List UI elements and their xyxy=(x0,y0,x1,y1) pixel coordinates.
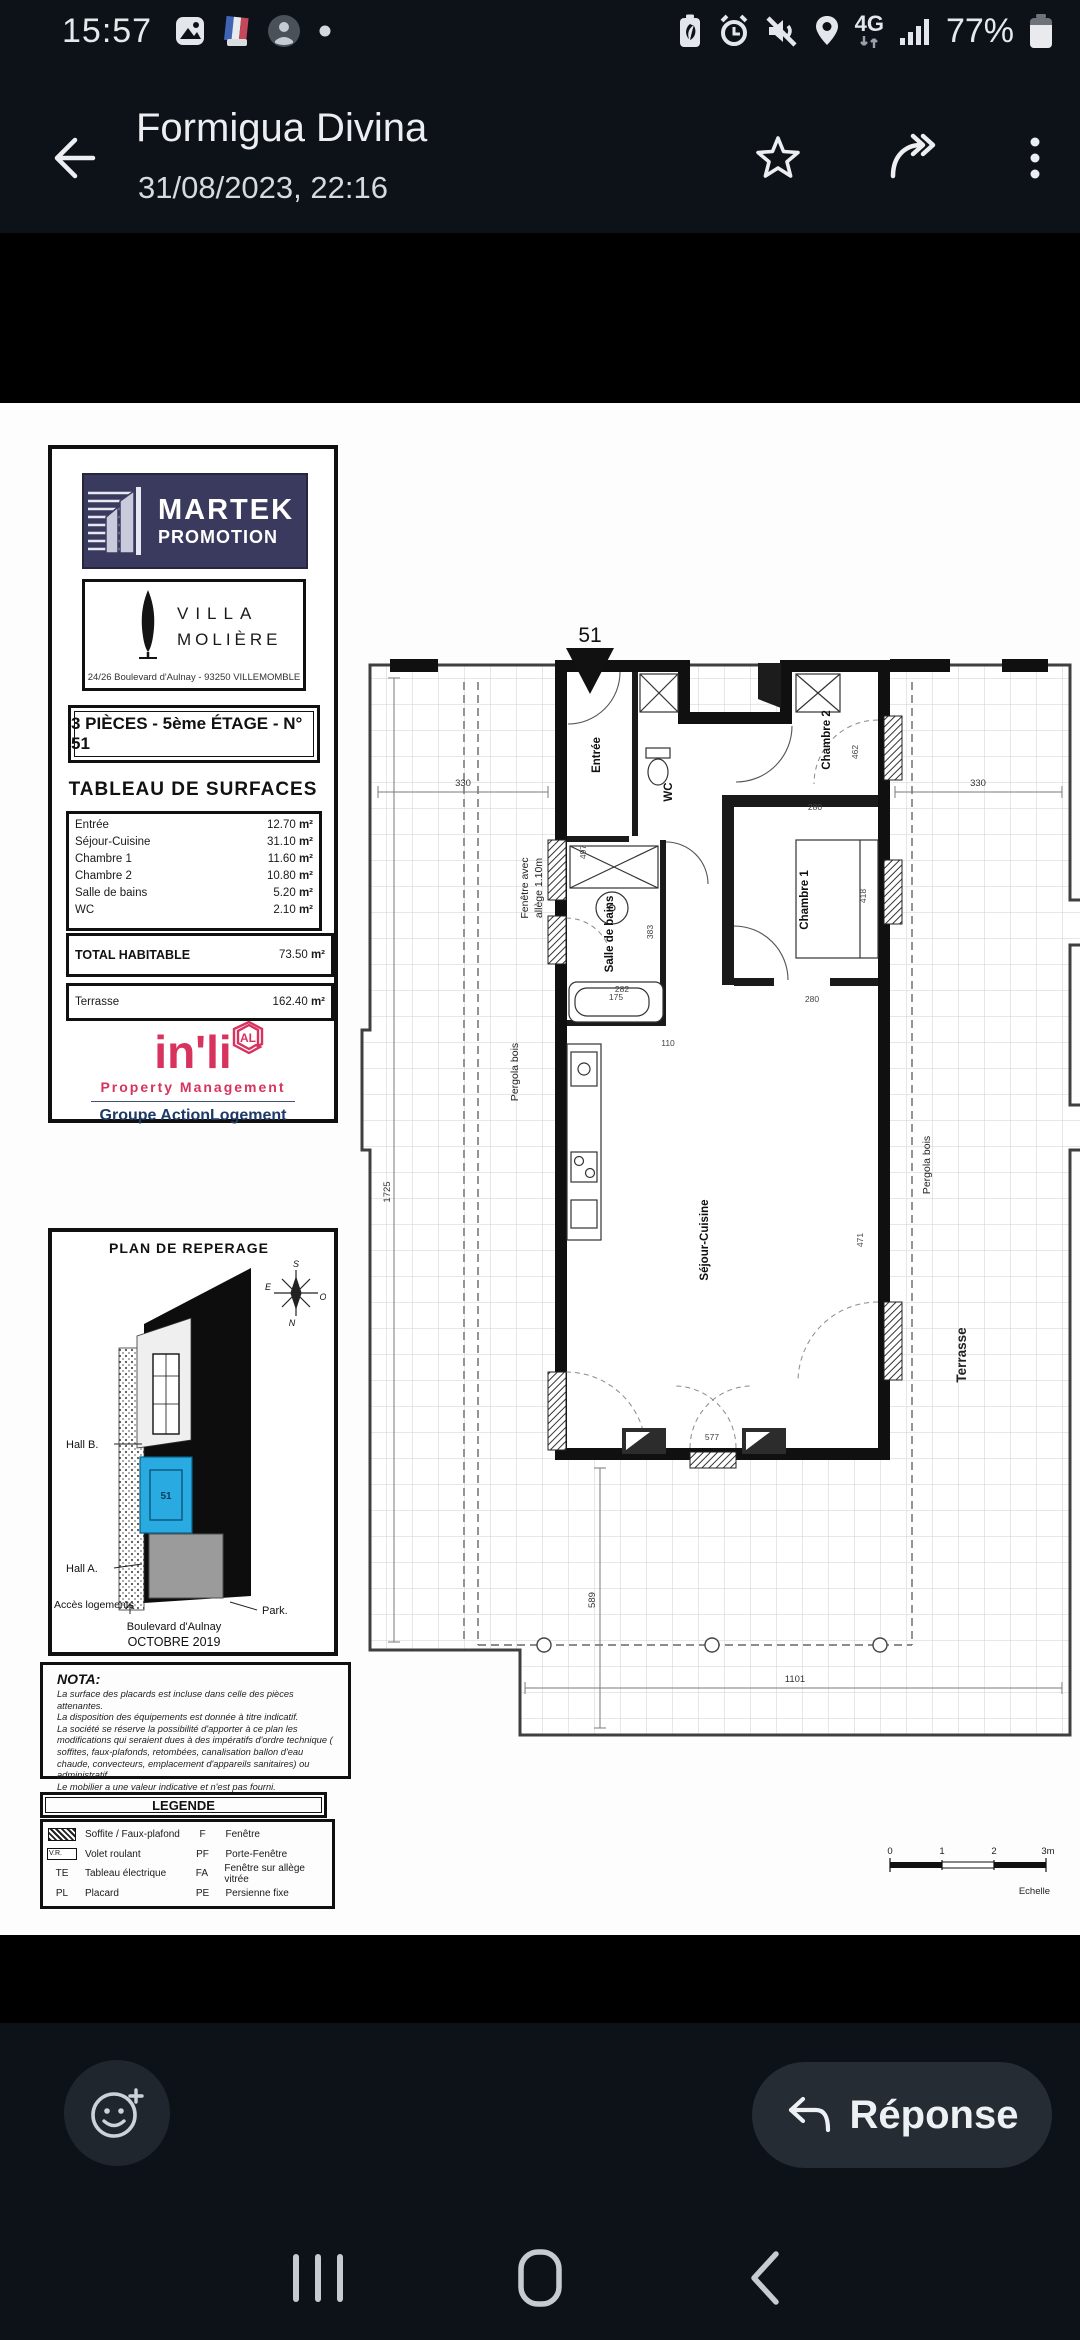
legend-panel: Soffite / Faux-plafond V.R.Volet roulant… xyxy=(40,1819,335,1909)
share-button[interactable] xyxy=(876,122,948,194)
battery-percent-label: 77% xyxy=(946,12,1014,51)
terrasse-label: Terrasse xyxy=(954,1327,969,1383)
back-chevron-icon xyxy=(744,2248,788,2308)
legend-item: TETableau électrique xyxy=(47,1866,188,1881)
svg-text:2: 2 xyxy=(991,1846,996,1857)
reperage-title: PLAN DE REPERAGE xyxy=(52,1240,326,1256)
app-header: Formigua Divina 31/08/2023, 22:16 xyxy=(0,62,1080,233)
legend-item: PLPlacard xyxy=(47,1886,188,1901)
surfaces-title: TABLEAU DE SURFACES xyxy=(52,779,334,801)
inli-logo: in'li AL Property Management Groupe Acti… xyxy=(52,1029,334,1125)
villa-moliere-logo: VILLA MOLIÈRE 24/26 Boulevard d'Aulnay -… xyxy=(82,579,306,691)
street-label: Boulevard d'Aulnay xyxy=(127,1621,222,1633)
cypress-tree-icon xyxy=(133,588,163,660)
svg-text:3m: 3m xyxy=(1041,1846,1054,1857)
forward-arrow-icon xyxy=(885,132,939,184)
site-map: S E O N 51 Hall B. Hall A. Accès logeme xyxy=(52,1258,326,1650)
add-reaction-button[interactable] xyxy=(64,2060,170,2166)
pergola-left-label: Pergola bois xyxy=(509,1043,521,1101)
svg-text:330: 330 xyxy=(970,778,986,789)
room-label-wc: WC xyxy=(663,782,675,801)
unit-banner: 3 PIÈCES - 5ème ÉTAGE - N° 51 xyxy=(68,705,320,763)
kebab-menu-icon xyxy=(1012,132,1058,184)
svg-text:N: N xyxy=(289,1318,296,1328)
avatar-notification-icon xyxy=(266,13,302,49)
legend-item: FFenêtre xyxy=(188,1827,329,1842)
svg-text:S: S xyxy=(293,1259,299,1269)
date-label: OCTOBRE 2019 xyxy=(128,1635,221,1649)
nota-line: La surface des placards est incluse dans… xyxy=(57,1689,338,1712)
volet-roulant-icon: V.R. xyxy=(47,1848,77,1860)
svg-text:AL: AL xyxy=(240,1031,256,1045)
back-arrow-icon xyxy=(45,131,99,185)
signal-icon xyxy=(898,14,932,48)
room-label-chambre2: Chambre 2 xyxy=(821,710,833,769)
svg-text:175: 175 xyxy=(609,992,623,1002)
reply-button[interactable]: Réponse xyxy=(752,2062,1052,2168)
scale-label: Echelle xyxy=(1019,1886,1050,1897)
martek-logo: MARTEK PROMOTION xyxy=(82,473,308,569)
inli-tagline: Property Management xyxy=(52,1079,334,1095)
nota-title: NOTA: xyxy=(57,1671,338,1687)
scale-bar: 0 1 2 3m Echelle xyxy=(887,1846,1054,1897)
martek-buildings-icon xyxy=(84,483,150,559)
clock: 15:57 xyxy=(62,12,152,51)
nota-line: La société se réserve la possibilité d'a… xyxy=(57,1724,338,1782)
total-row: TOTAL HABITABLE 73.50 m² xyxy=(66,933,334,977)
martek-subname: PROMOTION xyxy=(158,528,294,546)
svg-text:418: 418 xyxy=(858,889,868,903)
svg-text:1101: 1101 xyxy=(785,1674,805,1685)
soffit-hatch-icon xyxy=(48,1828,76,1841)
martek-name: MARTEK xyxy=(158,496,294,525)
network-type-label: 4G xyxy=(855,13,884,35)
room-label-sejour: Séjour-Cuisine xyxy=(699,1199,711,1280)
svg-text:280: 280 xyxy=(808,802,822,812)
navigation-bar xyxy=(0,2223,1080,2333)
svg-text:110: 110 xyxy=(661,1038,675,1048)
table-row: Chambre 210.80 m² xyxy=(69,867,319,884)
floor-plan: 330 330 1725 1101 589 xyxy=(360,600,1080,1900)
nota-line: La disposition des équipements est donné… xyxy=(57,1712,338,1724)
alarm-icon xyxy=(717,13,751,49)
table-row: WC2.10 m² xyxy=(69,901,319,918)
room-label-chambre1: Chambre 1 xyxy=(799,870,811,930)
terrace-row: Terrasse 162.40 m² xyxy=(66,983,334,1021)
inli-group: Groupe ActionLogement xyxy=(52,1107,334,1125)
back-button[interactable] xyxy=(36,122,108,194)
surfaces-table: Entrée12.70 m² Séjour-Cuisine31.10 m² Ch… xyxy=(66,811,322,931)
hall-a-label: Hall A. xyxy=(66,1563,98,1575)
legend-item: Soffite / Faux-plafond xyxy=(47,1827,188,1842)
dot-notification-icon xyxy=(318,24,332,38)
legend-item: PFPorte-Fenêtre xyxy=(188,1847,329,1862)
divider xyxy=(91,1101,295,1102)
photo-timestamp: 31/08/2023, 22:16 xyxy=(138,170,388,206)
table-row: Séjour-Cuisine31.10 m² xyxy=(69,833,319,850)
room-label-sdb: Salle de bains xyxy=(604,896,616,973)
legend-item: V.R.Volet roulant xyxy=(47,1847,188,1862)
favorite-button[interactable] xyxy=(742,122,814,194)
svg-text:497: 497 xyxy=(578,845,588,859)
home-icon xyxy=(513,2247,567,2309)
status-bar: 15:57 4G 77% xyxy=(0,0,1080,62)
svg-text:E: E xyxy=(265,1282,272,1292)
menu-button[interactable] xyxy=(999,122,1071,194)
svg-text:383: 383 xyxy=(645,925,655,939)
legend-item: PEPersienne fixe xyxy=(188,1886,329,1901)
location-icon xyxy=(813,13,841,49)
villa-name-line1: VILLA xyxy=(177,604,282,624)
villa-name-line2: MOLIÈRE xyxy=(177,630,282,650)
hall-b-label: Hall B. xyxy=(66,1439,98,1451)
nota-panel: NOTA: La surface des placards est inclus… xyxy=(40,1662,351,1779)
photo-viewer[interactable]: MARTEK PROMOTION VILLA MOLIÈRE 24/26 Bou… xyxy=(0,233,1080,2023)
svg-text:280: 280 xyxy=(805,994,819,1004)
al-hexagon-icon: AL xyxy=(232,1015,266,1061)
legend-item: FAFenêtre sur allège vitrée xyxy=(188,1866,329,1881)
reperage-panel: PLAN DE REPERAGE S E O N xyxy=(48,1228,338,1656)
svg-text:577: 577 xyxy=(705,1432,719,1442)
network-arrows-icon xyxy=(856,35,882,49)
unit-51-label: 51 xyxy=(160,1491,172,1502)
bottom-bar: Réponse xyxy=(0,2023,1080,2340)
emoji-add-icon xyxy=(88,2084,146,2142)
star-icon xyxy=(752,132,804,184)
recents-icon xyxy=(287,2250,349,2306)
svg-text:O: O xyxy=(319,1292,326,1302)
unit-marker-label: 51 xyxy=(578,624,601,647)
svg-text:589: 589 xyxy=(587,1592,598,1608)
back-nav-button[interactable] xyxy=(706,2228,826,2328)
park-label: Park. xyxy=(262,1605,288,1617)
mute-icon xyxy=(765,13,799,49)
svg-text:allège 1.10m: allège 1.10m xyxy=(533,858,545,918)
svg-text:471: 471 xyxy=(855,1233,865,1247)
reply-arrow-icon xyxy=(786,2094,832,2136)
svg-text:1725: 1725 xyxy=(382,1181,393,1202)
svg-text:1: 1 xyxy=(939,1846,944,1857)
recents-button[interactable] xyxy=(258,2228,378,2328)
room-label-entree: Entrée xyxy=(591,737,603,773)
table-row: Salle de bains5.20 m² xyxy=(69,884,319,901)
battery-saver-icon xyxy=(677,13,703,49)
home-button[interactable] xyxy=(480,2228,600,2328)
floorplan-document: MARTEK PROMOTION VILLA MOLIÈRE 24/26 Bou… xyxy=(0,403,1080,1935)
svg-text:462: 462 xyxy=(850,745,860,759)
flag-notification-icon xyxy=(222,15,250,47)
info-panel: MARTEK PROMOTION VILLA MOLIÈRE 24/26 Bou… xyxy=(48,445,338,1123)
pergola-right-label: Pergola bois xyxy=(921,1136,933,1194)
page-title: Formigua Divina xyxy=(136,106,427,151)
battery-icon xyxy=(1028,12,1054,50)
parking-block xyxy=(149,1534,223,1598)
svg-text:330: 330 xyxy=(455,778,471,789)
reply-label: Réponse xyxy=(850,2093,1019,2138)
compass-icon xyxy=(274,1270,318,1316)
svg-text:Fenêtre avec: Fenêtre avec xyxy=(519,857,531,918)
acces-label: Accès logements xyxy=(54,1599,134,1611)
gallery-notification-icon xyxy=(174,15,206,47)
table-row: Chambre 111.60 m² xyxy=(69,850,319,867)
legend-title: LEGENDE xyxy=(40,1792,327,1818)
villa-address: 24/26 Boulevard d'Aulnay - 93250 VILLEMO… xyxy=(85,672,303,683)
table-row: Entrée12.70 m² xyxy=(69,816,319,833)
svg-text:0: 0 xyxy=(887,1846,892,1857)
